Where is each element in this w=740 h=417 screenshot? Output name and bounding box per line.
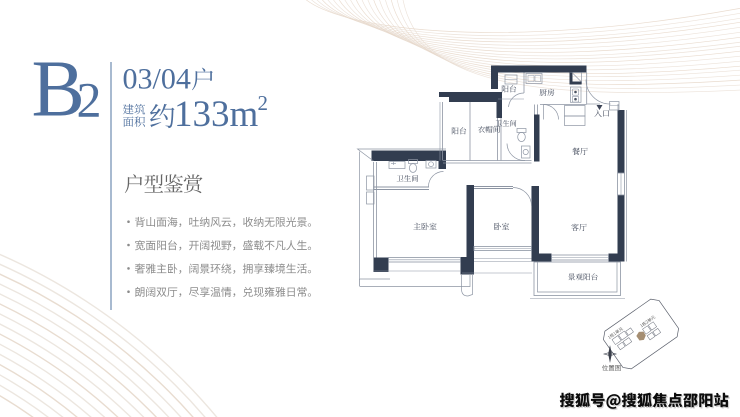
svg-text:2: 2 (77, 72, 102, 128)
svg-text:03/04: 03/04 (123, 62, 191, 95)
svg-text:133m: 133m (174, 94, 259, 135)
svg-text:2: 2 (258, 91, 269, 115)
